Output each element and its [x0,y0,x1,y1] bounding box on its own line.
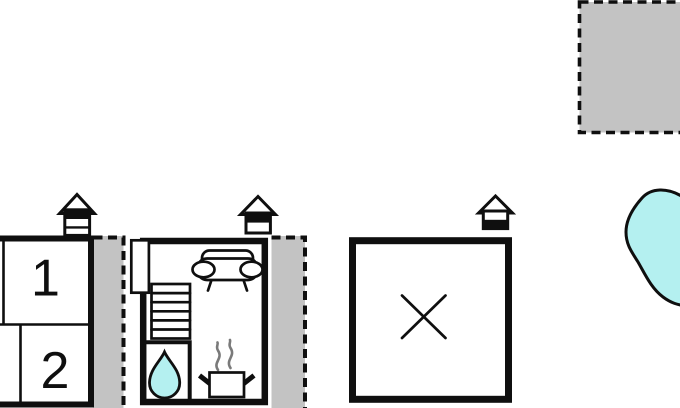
pot-body [210,373,245,398]
floor-plan: 1 2 [0,0,680,408]
entrance-house-icon-middle [241,197,276,234]
sofa-armrest [241,262,263,278]
room-1-label: 1 [31,250,60,308]
entrance-house-icon-left [60,195,95,236]
entrance-black-band-icon [483,220,507,229]
entrance-house-icon-right [479,196,513,229]
entrance-black-band-icon [65,210,90,219]
floor-plan-canvas: 1 2 [0,0,680,408]
room-2-label: 2 [41,342,70,400]
guest-house: 1 2 [0,239,91,405]
terrace-middle [272,236,306,408]
sofa-armrest [193,262,215,278]
terrace-left-fill [94,236,124,408]
entrance-black-band-icon [246,213,270,223]
pool [626,190,680,306]
outbuilding-outline [353,241,509,400]
door-opening [131,240,149,292]
main-house [131,240,264,404]
stairs-icon [152,284,191,339]
outbuilding [353,241,509,400]
terrace-middle-fill [272,236,306,408]
terrace-left [94,236,124,408]
annex-dashed-area [580,2,680,133]
